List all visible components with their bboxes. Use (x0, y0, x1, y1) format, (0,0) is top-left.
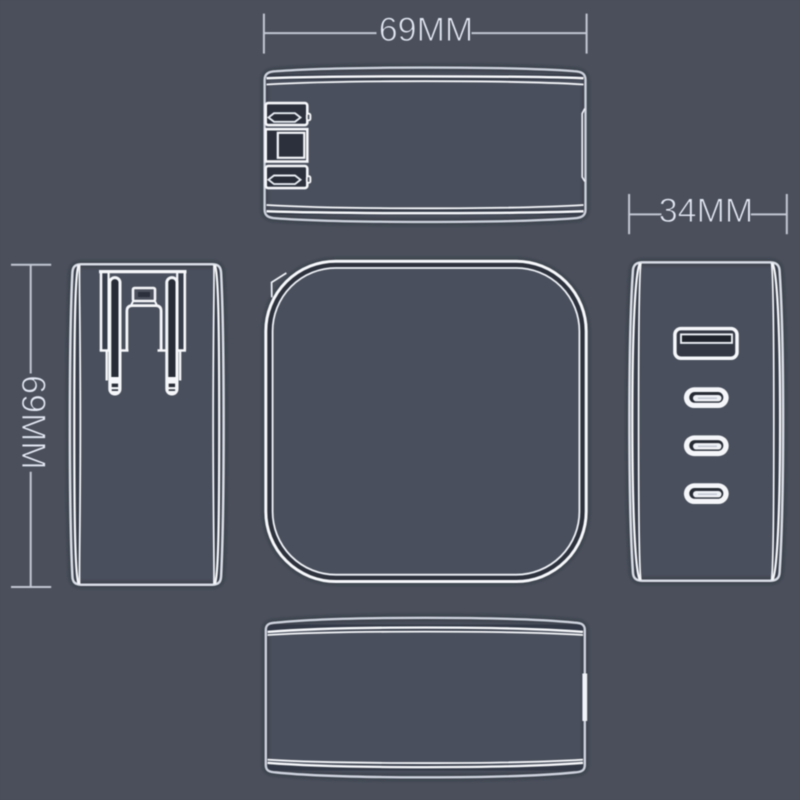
svg-text:34MM: 34MM (659, 192, 753, 230)
svg-text:69MM: 69MM (379, 11, 473, 49)
svg-text:69MM: 69MM (14, 375, 52, 469)
